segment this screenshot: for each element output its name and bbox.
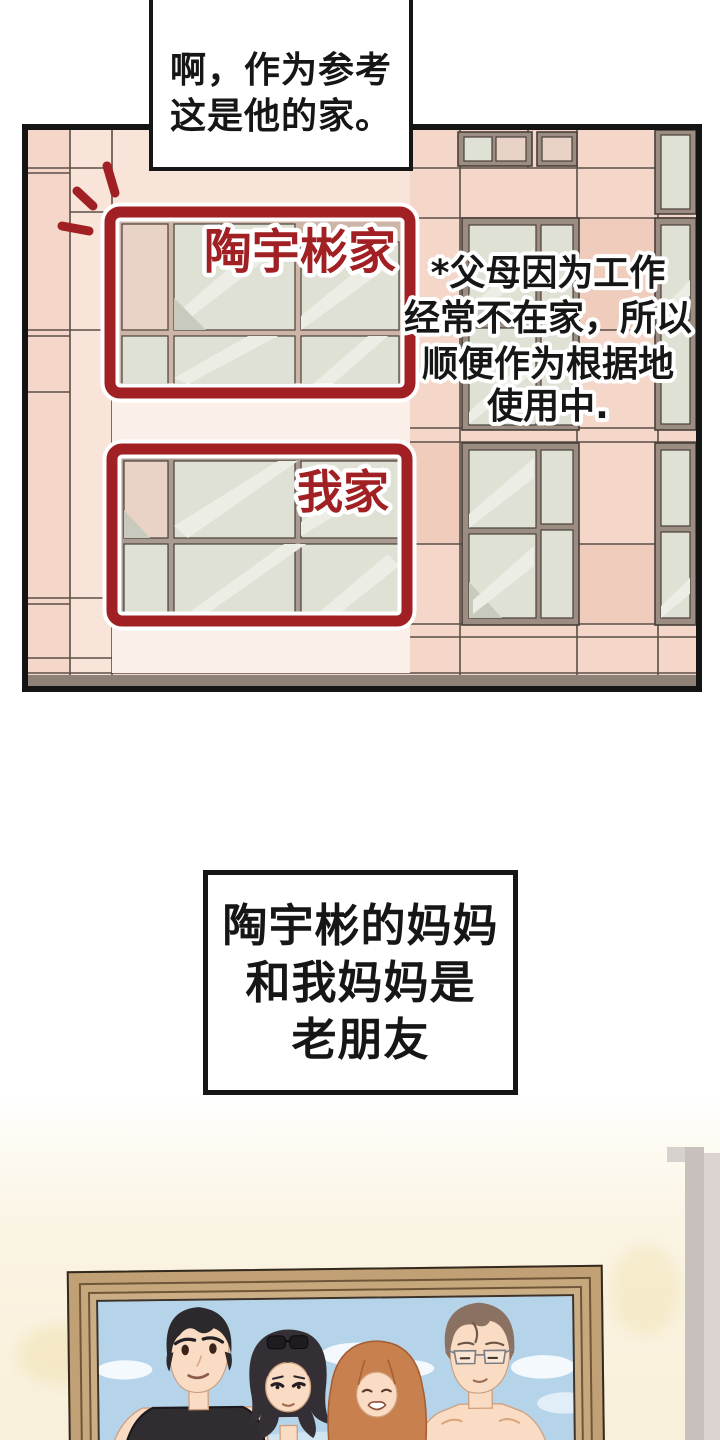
svg-text:*父母因为工作: *父母因为工作 bbox=[431, 253, 666, 294]
wall-corner-trim bbox=[685, 1147, 704, 1440]
caption-line: 老朋友 bbox=[208, 1011, 513, 1068]
narration-caption-top: 啊，作为参考 这是他的家。 bbox=[149, 0, 413, 171]
family-photo-frame bbox=[67, 1265, 606, 1440]
wall-corner-notch bbox=[667, 1147, 685, 1162]
building-panel: 陶宇彬家 我家 *父母因为工作 经常不在家，所以 顺便作为根据地 使用中. bbox=[22, 124, 702, 692]
svg-text:顺便作为根据地: 顺便作为根据地 bbox=[422, 344, 674, 385]
building-facade-illustration: 陶宇彬家 我家 *父母因为工作 经常不在家，所以 顺便作为根据地 使用中. bbox=[28, 130, 696, 686]
svg-text:使用中.: 使用中. bbox=[487, 386, 609, 427]
caption-line: 和我妈妈是 bbox=[208, 954, 513, 1011]
svg-text:经常不在家，所以: 经常不在家，所以 bbox=[404, 298, 692, 339]
wall-shading bbox=[610, 1245, 680, 1335]
comic-page: 陶宇彬家 我家 *父母因为工作 经常不在家，所以 顺便作为根据地 使用中. 啊，… bbox=[0, 0, 720, 1440]
narration-caption-middle: 陶宇彬的妈妈 和我妈妈是 老朋友 bbox=[203, 870, 518, 1095]
caption-line: 这是他的家。 bbox=[153, 94, 409, 140]
bottom-ledge bbox=[28, 675, 696, 686]
caption-line: 啊，作为参考 bbox=[153, 48, 409, 94]
wall-corner-trim-light bbox=[704, 1153, 720, 1440]
caption-line: 陶宇彬的妈妈 bbox=[208, 897, 513, 954]
right-window-lower bbox=[462, 443, 579, 625]
home-label-mine: 我家 bbox=[297, 465, 389, 519]
home-label-taoyubin: 陶宇彬家 bbox=[204, 224, 396, 280]
room-wall-scene bbox=[0, 1095, 720, 1440]
family-photo bbox=[98, 1296, 574, 1440]
